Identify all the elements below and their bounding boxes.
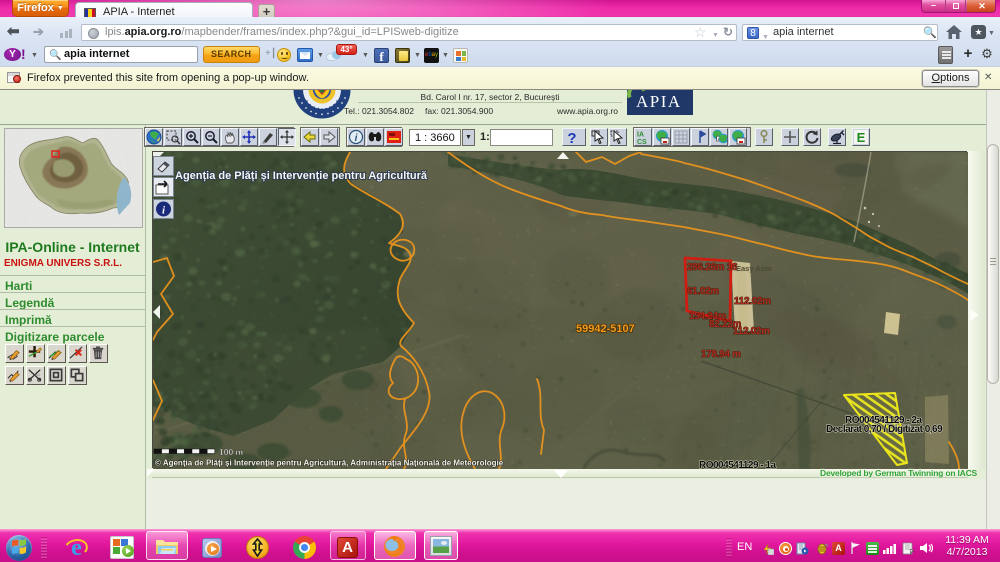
svg-text:RO004541129 - 1a: RO004541129 - 1a bbox=[699, 460, 776, 469]
svg-text:61.02m: 61.02m bbox=[687, 286, 720, 297]
svg-text:E: E bbox=[857, 130, 866, 145]
svg-text:286.26m 16: 286.26m 16 bbox=[687, 262, 738, 273]
svg-text:112.02m: 112.02m bbox=[734, 296, 771, 307]
svg-text:© Agenția de Plăți și Interven: © Agenția de Plăți și Intervenție pentru… bbox=[155, 459, 504, 468]
svg-text:112.02m: 112.02m bbox=[733, 326, 770, 337]
svg-text:100 m: 100 m bbox=[219, 447, 244, 457]
svg-text:Agenția de Plăți și Intervenți: Agenția de Plăți și Intervenție pentru A… bbox=[175, 170, 428, 182]
svg-text:i: i bbox=[355, 133, 358, 144]
svg-text:Easy Acm: Easy Acm bbox=[736, 264, 772, 273]
svg-text:Declarat 0,70 / Digitizat 0,69: Declarat 0,70 / Digitizat 0,69 bbox=[826, 424, 943, 435]
svg-text:178.94 m: 178.94 m bbox=[701, 349, 741, 360]
svg-text:CS: CS bbox=[637, 139, 647, 145]
svg-text:?: ? bbox=[567, 130, 576, 145]
svg-text:IA: IA bbox=[637, 132, 644, 139]
svg-text:e: e bbox=[71, 535, 82, 560]
svg-text:59942-5107: 59942-5107 bbox=[576, 323, 635, 335]
